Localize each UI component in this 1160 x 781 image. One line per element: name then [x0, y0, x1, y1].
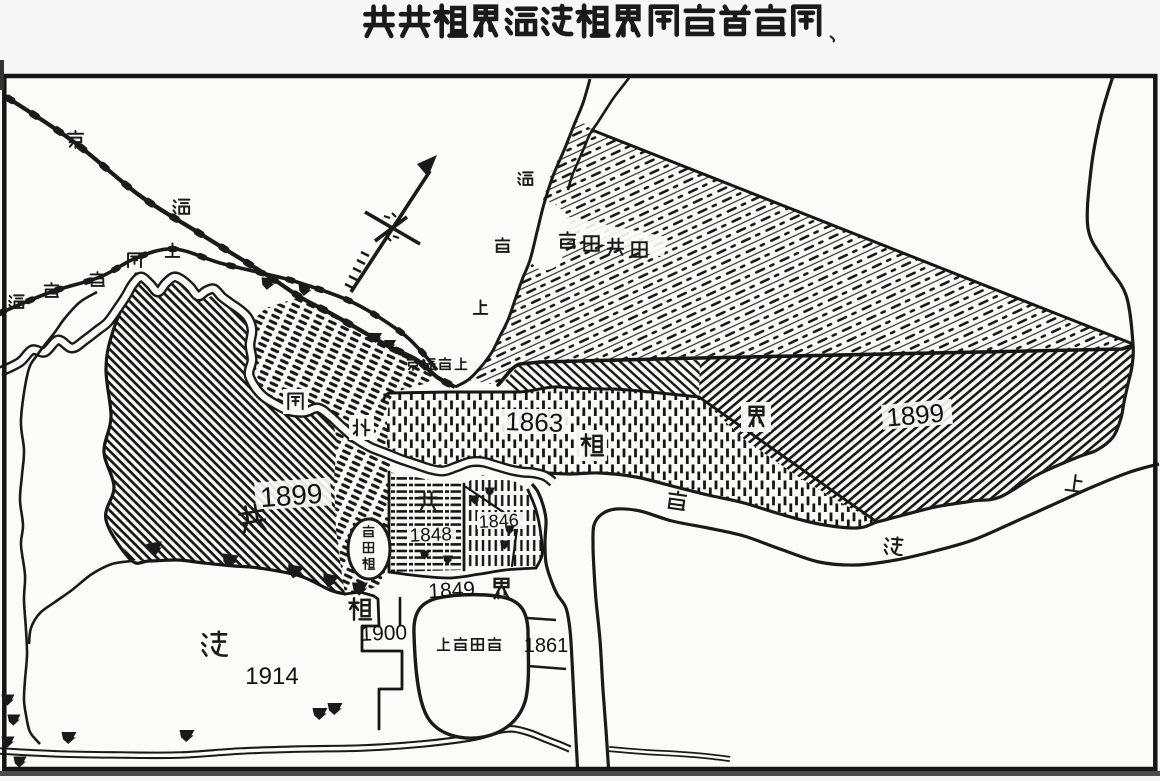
- svg-text:1900: 1900: [360, 621, 407, 646]
- svg-text:1861: 1861: [524, 635, 569, 657]
- svg-text:1914: 1914: [245, 663, 298, 690]
- svg-text:1849: 1849: [428, 578, 476, 603]
- svg-text:1899: 1899: [259, 478, 323, 513]
- svg-text:1899: 1899: [885, 398, 945, 433]
- svg-text:1863: 1863: [505, 406, 564, 438]
- svg-text:1848: 1848: [409, 524, 452, 546]
